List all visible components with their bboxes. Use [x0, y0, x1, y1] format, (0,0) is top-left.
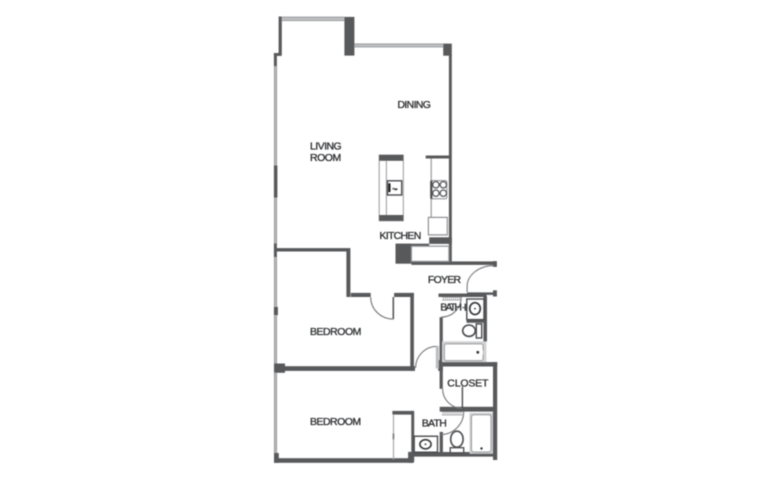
svg-text:CLOSET: CLOSET — [447, 377, 489, 389]
svg-text:DINING: DINING — [398, 99, 432, 111]
svg-text:ROOM: ROOM — [310, 152, 341, 164]
svg-text:BEDROOM: BEDROOM — [310, 326, 362, 338]
svg-text:FOYER: FOYER — [428, 274, 462, 286]
svg-text:LIVING: LIVING — [310, 140, 342, 152]
svg-text:BEDROOM: BEDROOM — [310, 416, 361, 428]
svg-text:KITCHEN: KITCHEN — [380, 230, 422, 242]
svg-text:BATH: BATH — [440, 302, 462, 314]
svg-text:BATH: BATH — [422, 417, 447, 429]
